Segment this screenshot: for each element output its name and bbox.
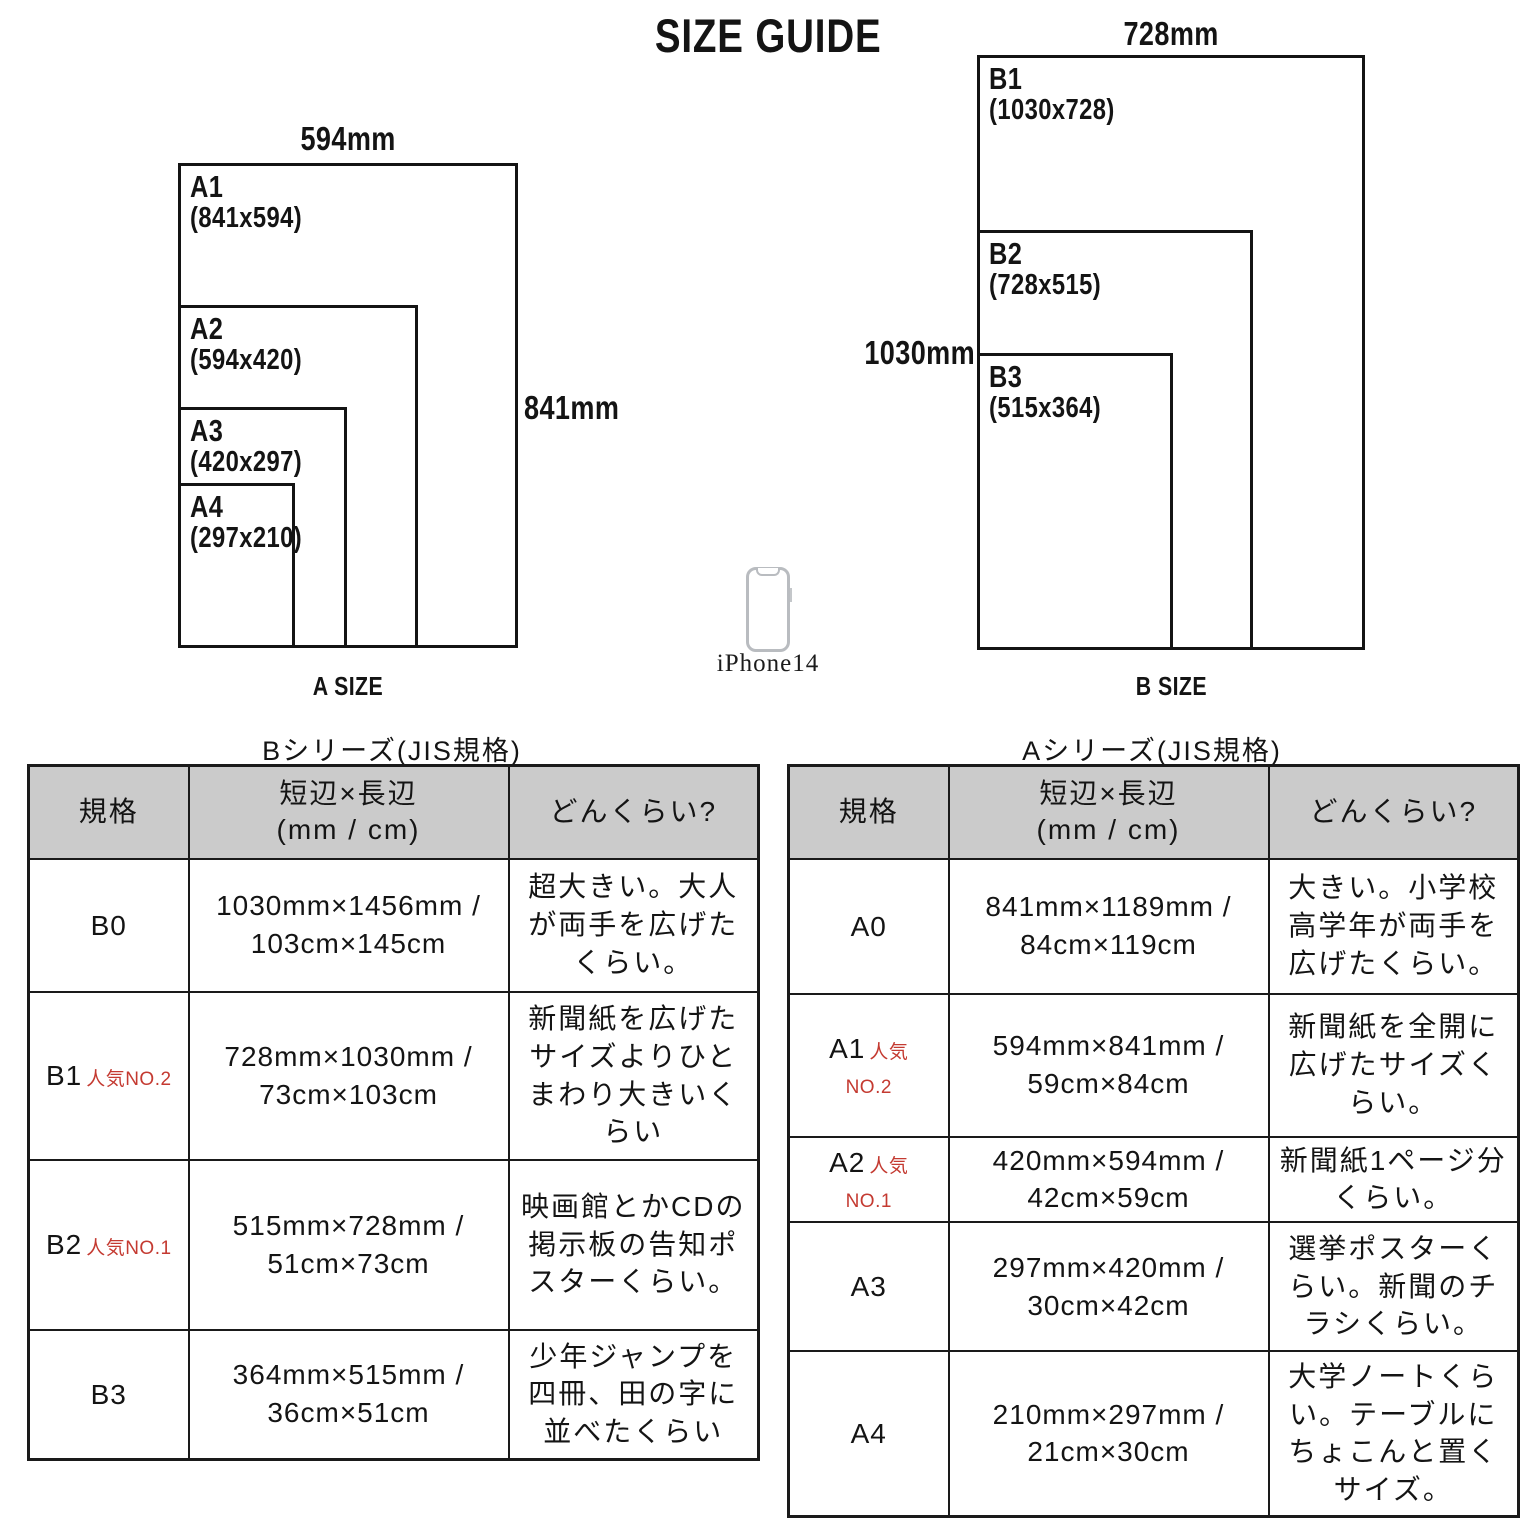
size-name-cell: A4 <box>789 1351 949 1516</box>
table-row: A0 841mm×1189mm / 84cm×119cm 大きい。小学校高学年が… <box>789 859 1519 994</box>
a-series-table: 規格 短辺×長辺 (mm / cm) どんくらい? A0 841mm×1189m… <box>787 764 1520 1518</box>
size-name-cell: A2人気 NO.1 <box>789 1137 949 1223</box>
size-name-cell: A1人気 NO.2 <box>789 994 949 1137</box>
b-header-dimensions: 短辺×長辺 (mm / cm) <box>189 766 509 859</box>
size-dims-cell: 364mm×515mm / 36cm×51cm <box>189 1330 509 1460</box>
iphone-side-button-icon <box>790 588 792 602</box>
size-name-cell: B2人気NO.1 <box>29 1160 189 1330</box>
b-series-table: 規格 短辺×長辺 (mm / cm) どんくらい? B0 1030mm×1456… <box>27 764 760 1461</box>
popularity-badge-rank: NO.2 <box>796 1076 942 1100</box>
a-header-standard: 規格 <box>789 766 949 859</box>
b-diagram-height-dim: 1030mm <box>840 334 972 372</box>
b-table-title: Bシリーズ(JIS規格) <box>27 729 757 768</box>
table-row: A4 210mm×297mm / 21cm×30cm 大学ノートくらい。テーブル… <box>789 1351 1519 1516</box>
size-name-cell: B3 <box>29 1330 189 1460</box>
size-dims-cell: 1030mm×1456mm / 103cm×145cm <box>189 859 509 992</box>
b-header-standard: 規格 <box>29 766 189 859</box>
b-diagram-width-dim: 728mm <box>977 15 1365 53</box>
b-size-caption: B SIZE <box>977 671 1365 702</box>
popularity-badge: 人気 <box>869 1042 908 1063</box>
size-guide-infographic: SIZE GUIDE 594mm A1 (841x594) A2 (594x42… <box>0 0 1536 1536</box>
size-name-cell: B0 <box>29 859 189 992</box>
size-desc-cell: 超大きい。大人が両手を広げたくらい。 <box>509 859 759 992</box>
iphone-label: iPhone14 <box>668 650 868 678</box>
b-header-how-big: どんくらい? <box>509 766 759 859</box>
size-desc-cell: 新聞紙を全開に広げたサイズくらい。 <box>1269 994 1519 1137</box>
size-dims-cell: 594mm×841mm / 59cm×84cm <box>949 994 1269 1137</box>
size-dims-cell: 420mm×594mm / 42cm×59cm <box>949 1137 1269 1223</box>
size-dims-cell: 515mm×728mm / 51cm×73cm <box>189 1160 509 1330</box>
a1-label: A1 (841x594) <box>190 171 327 233</box>
size-desc-cell: 映画館とかCDの掲示板の告知ポスターくらい。 <box>509 1160 759 1330</box>
iphone-notch-icon <box>756 568 780 576</box>
size-desc-cell: 新聞紙1ページ分くらい。 <box>1269 1137 1519 1223</box>
b3-rect: B3 (515x364) <box>977 353 1173 650</box>
size-desc-cell: 少年ジャンプを四冊、田の字に並べたくらい <box>509 1330 759 1460</box>
b3-label: B3 (515x364) <box>989 361 1126 423</box>
size-desc-cell: 選挙ポスターくらい。新聞のチラシくらい。 <box>1269 1222 1519 1351</box>
b-table-header-row: 規格 短辺×長辺 (mm / cm) どんくらい? <box>29 766 759 859</box>
popularity-badge-rank: NO.1 <box>796 1190 942 1214</box>
size-dims-cell: 728mm×1030mm / 73cm×103cm <box>189 992 509 1160</box>
a-header-dimensions: 短辺×長辺 (mm / cm) <box>949 766 1269 859</box>
popularity-badge: 人気NO.2 <box>86 1069 171 1090</box>
a3-label: A3 (420x297) <box>190 415 327 477</box>
a-header-how-big: どんくらい? <box>1269 766 1519 859</box>
popularity-badge: 人気 <box>869 1156 908 1177</box>
table-row: B1人気NO.2 728mm×1030mm / 73cm×103cm 新聞紙を広… <box>29 992 759 1160</box>
size-desc-cell: 大きい。小学校高学年が両手を広げたくらい。 <box>1269 859 1519 994</box>
size-dims-cell: 841mm×1189mm / 84cm×119cm <box>949 859 1269 994</box>
size-name-cell: B1人気NO.2 <box>29 992 189 1160</box>
a-table-header-row: 規格 短辺×長辺 (mm / cm) どんくらい? <box>789 766 1519 859</box>
table-row: B3 364mm×515mm / 36cm×51cm 少年ジャンプを四冊、田の字… <box>29 1330 759 1460</box>
size-name-cell: A0 <box>789 859 949 994</box>
a-size-caption: A SIZE <box>178 671 518 702</box>
a-diagram-width-dim: 594mm <box>178 120 518 158</box>
table-row: A3 297mm×420mm / 30cm×42cm 選挙ポスターくらい。新聞の… <box>789 1222 1519 1351</box>
a4-rect: A4 (297x210) <box>178 483 295 648</box>
b2-label: B2 (728x515) <box>989 238 1126 300</box>
iphone-icon <box>746 567 790 652</box>
a4-label: A4 (297x210) <box>190 491 327 553</box>
a-diagram-height-dim: 841mm <box>524 389 674 427</box>
a-table-title: Aシリーズ(JIS規格) <box>787 729 1517 768</box>
size-desc-cell: 新聞紙を広げたサイズよりひとまわり大きいくらい <box>509 992 759 1160</box>
a2-label: A2 (594x420) <box>190 313 327 375</box>
size-desc-cell: 大学ノートくらい。テーブルにちょこんと置くサイズ。 <box>1269 1351 1519 1516</box>
size-dims-cell: 210mm×297mm / 21cm×30cm <box>949 1351 1269 1516</box>
size-dims-cell: 297mm×420mm / 30cm×42cm <box>949 1222 1269 1351</box>
size-name-cell: A3 <box>789 1222 949 1351</box>
table-row: B2人気NO.1 515mm×728mm / 51cm×73cm 映画館とかCD… <box>29 1160 759 1330</box>
table-row: A1人気 NO.2 594mm×841mm / 59cm×84cm 新聞紙を全開… <box>789 994 1519 1137</box>
b1-label: B1 (1030x728) <box>989 63 1142 125</box>
table-row: A2人気 NO.1 420mm×594mm / 42cm×59cm 新聞紙1ペー… <box>789 1137 1519 1223</box>
table-row: B0 1030mm×1456mm / 103cm×145cm 超大きい。大人が両… <box>29 859 759 992</box>
popularity-badge: 人気NO.1 <box>86 1238 171 1259</box>
page-title-text: SIZE GUIDE <box>655 8 882 63</box>
